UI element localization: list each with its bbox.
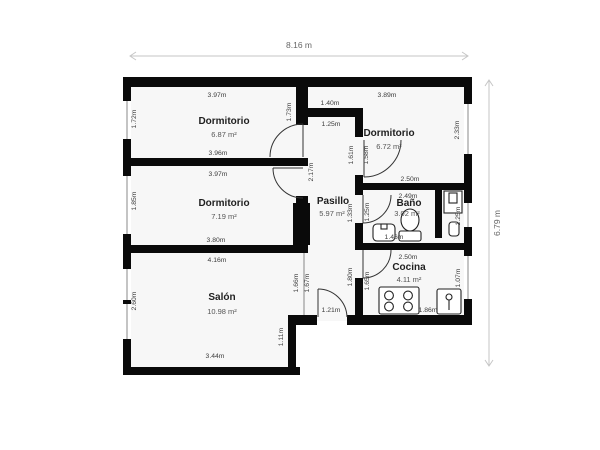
dim-bano-fixture: 1.46m bbox=[385, 234, 404, 241]
dim-cocina-counter: 1.86m bbox=[419, 307, 438, 314]
dim-salon-right-a: 1.66m bbox=[293, 273, 300, 292]
dim-d1-top: 3.97m bbox=[208, 92, 227, 99]
dim-cocina-left: 1.65m bbox=[364, 271, 371, 290]
dim-salon-left: 2.60m bbox=[131, 291, 138, 310]
dim-salon-top: 4.16m bbox=[208, 257, 227, 264]
dim-d1-right: 1.73m bbox=[286, 102, 293, 121]
window-tick bbox=[123, 266, 131, 269]
floor-plan: 8.16 m 6.79 m bbox=[0, 0, 600, 450]
sink-faucet bbox=[381, 224, 387, 229]
dim-bano-window: 1.25m bbox=[455, 206, 462, 225]
window-tick bbox=[464, 154, 472, 157]
wall-d1-d2 bbox=[123, 158, 308, 166]
column-shaft bbox=[293, 203, 310, 245]
window-d1 bbox=[123, 98, 131, 142]
wall-hall-right-4 bbox=[355, 278, 363, 315]
dim-d2-top: 3.97m bbox=[209, 171, 228, 178]
wall-bottom-salon bbox=[123, 367, 300, 375]
window-tick bbox=[464, 200, 472, 203]
fixture-inner bbox=[449, 193, 457, 203]
wall-bano-cocina bbox=[355, 243, 472, 250]
wall-notch bbox=[296, 108, 363, 117]
window-tick bbox=[123, 234, 131, 237]
dim-cocina-window: 1.07m bbox=[455, 268, 462, 287]
dim-d3-left-hall: 1.61m bbox=[348, 145, 355, 164]
sink-drain bbox=[446, 294, 452, 300]
label-dormitorio2: Dormitorio bbox=[198, 198, 249, 209]
window-tick bbox=[123, 139, 131, 142]
window-tick bbox=[464, 253, 472, 256]
dim-entry-door: 1.21m bbox=[322, 307, 341, 314]
stove-body bbox=[379, 287, 419, 314]
label-pasillo: Pasillo bbox=[317, 196, 349, 207]
window-d3 bbox=[464, 101, 472, 157]
sink-cocina-icon bbox=[437, 289, 461, 314]
area-pasillo: 5.97 m² bbox=[319, 209, 345, 218]
area-dormitorio2: 7.19 m² bbox=[211, 212, 237, 221]
window-tick bbox=[123, 339, 131, 342]
dim-hall-bottom: 1.80m bbox=[347, 267, 354, 286]
stove-icon bbox=[379, 287, 419, 314]
burner bbox=[404, 302, 413, 311]
dim-notch-top: 1.40m bbox=[321, 100, 340, 107]
window-tick bbox=[464, 299, 472, 302]
wall-d3-bano bbox=[355, 183, 472, 190]
dim-salon-step: 1.11m bbox=[278, 327, 285, 346]
dim-d3-bottom: 2.50m bbox=[401, 176, 420, 183]
area-dormitorio3: 6.72 m² bbox=[376, 142, 402, 151]
dim-salon-bottom: 3.44m bbox=[206, 353, 225, 360]
label-salon: Salón bbox=[208, 292, 235, 303]
dim-d2-left: 1.85m bbox=[131, 191, 138, 210]
dim-cocina-top: 2.50m bbox=[399, 254, 418, 261]
area-dormitorio1: 6.87 m² bbox=[211, 130, 237, 139]
dim-d2-bottom: 3.80m bbox=[207, 237, 226, 244]
dim-notch-bottom: 1.25m bbox=[322, 121, 341, 128]
dim-d3-left-in: 1.58m bbox=[363, 145, 370, 164]
window-bano bbox=[464, 200, 472, 230]
floor-plan-page: 8.16 m 6.79 m bbox=[0, 0, 600, 450]
wall-hall-right-1 bbox=[355, 117, 363, 137]
window-tick bbox=[123, 300, 131, 304]
dim-salon-right-b: 1.67m bbox=[304, 273, 311, 292]
window-d2 bbox=[123, 173, 131, 237]
window-tick bbox=[464, 227, 472, 230]
window-salon bbox=[123, 266, 131, 342]
burner bbox=[404, 291, 413, 300]
burner bbox=[385, 291, 394, 300]
window-cocina bbox=[464, 253, 472, 302]
label-cocina: Cocina bbox=[392, 262, 426, 273]
wall-bottom-entry-left bbox=[288, 315, 317, 325]
label-dormitorio1: Dormitorio bbox=[198, 116, 249, 127]
overall-height-label: 6.79 m bbox=[492, 210, 502, 236]
wall-d2-salon bbox=[123, 245, 308, 253]
dim-bano-left: 1.25m bbox=[364, 202, 371, 221]
wall-bano-divider bbox=[435, 190, 442, 238]
area-salon: 10.98 m² bbox=[207, 307, 237, 316]
burner bbox=[385, 302, 394, 311]
overall-width-label: 8.16 m bbox=[286, 40, 312, 50]
dim-d2-right: 2.17m bbox=[308, 162, 315, 181]
window-tick bbox=[123, 173, 131, 176]
window-tick bbox=[464, 101, 472, 104]
wall-bottom-entry-right bbox=[347, 315, 472, 325]
dim-bano-top: 2.49m bbox=[399, 193, 418, 200]
wall-d1-right-upper bbox=[296, 77, 308, 125]
area-cocina: 4.11 m² bbox=[397, 275, 422, 284]
label-dormitorio3: Dormitorio bbox=[363, 128, 414, 139]
area-bano: 3.02 m² bbox=[394, 209, 420, 218]
dim-d3-top: 3.89m bbox=[378, 92, 397, 99]
window-tick bbox=[123, 98, 131, 101]
dim-hall-mid: 1.33m bbox=[347, 203, 354, 222]
dim-d1-left: 1.72m bbox=[131, 109, 138, 128]
dim-d1-bottom: 3.96m bbox=[209, 150, 228, 157]
dim-d3-right: 2.33m bbox=[454, 120, 461, 139]
